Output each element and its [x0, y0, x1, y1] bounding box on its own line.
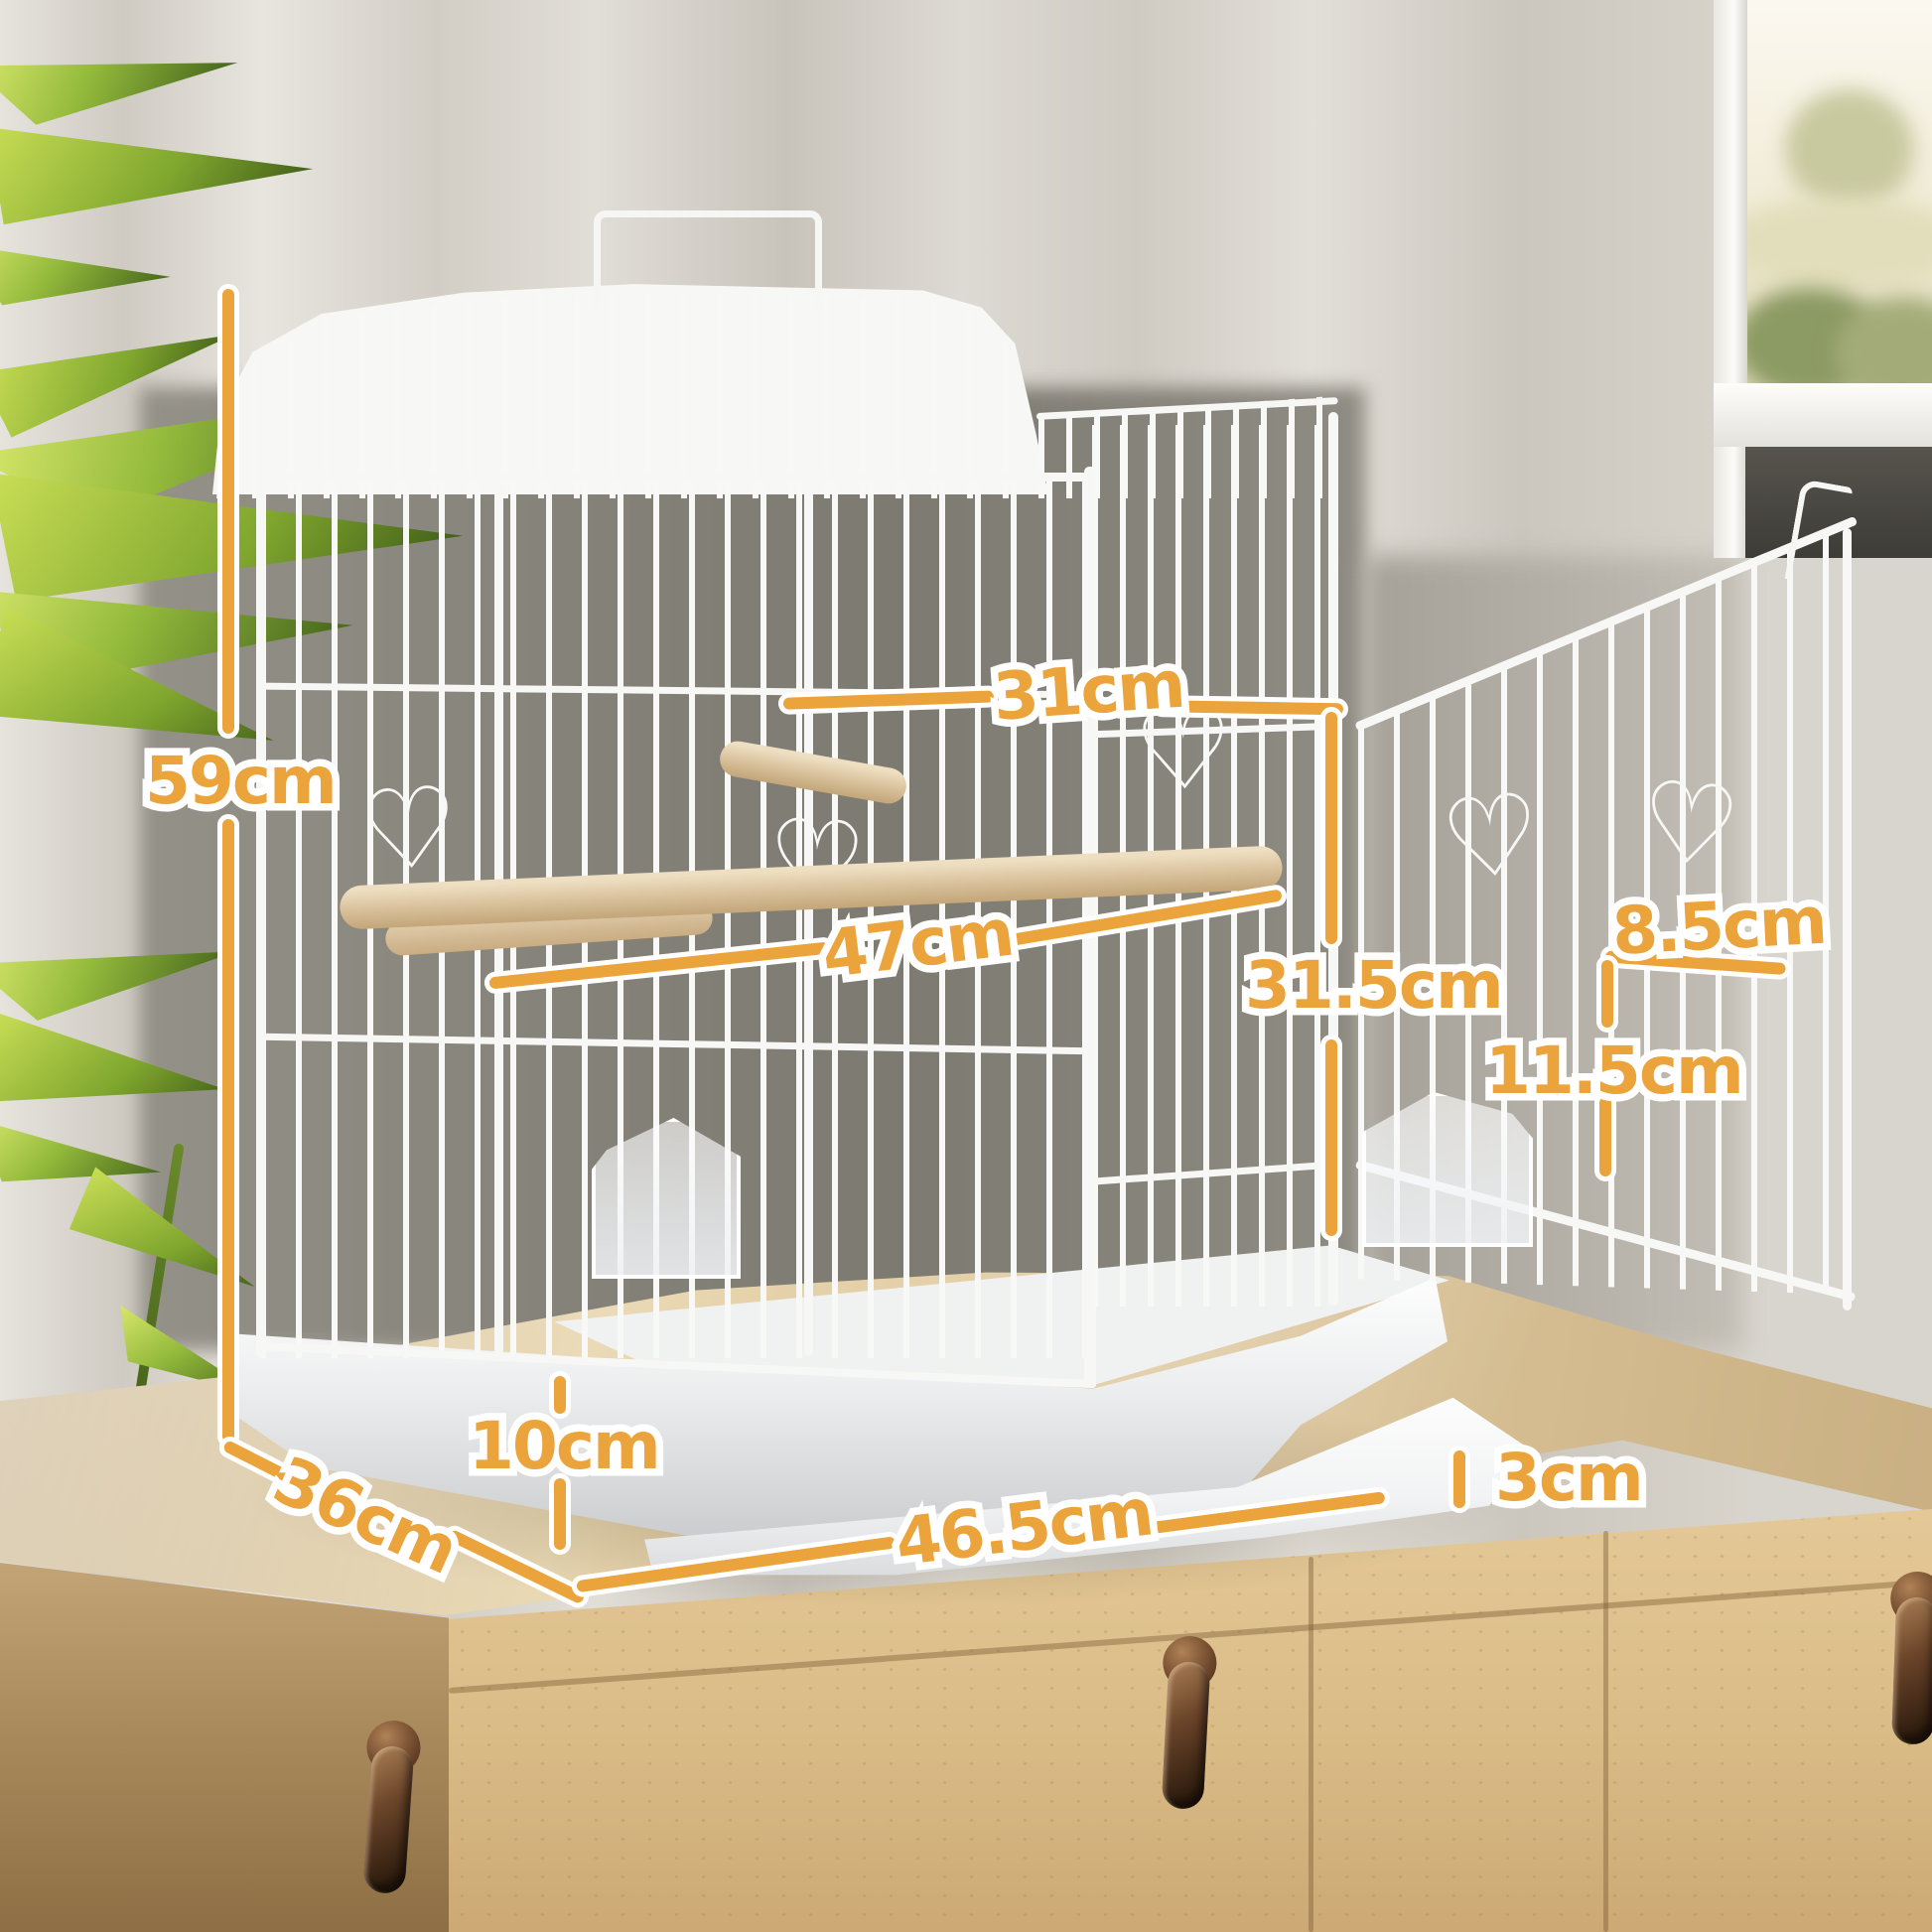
dim-label-59cm: 59cm59cm [145, 743, 336, 819]
heart-wire-icon: ♡ [1436, 777, 1547, 898]
drawer-handle-strap [362, 1745, 414, 1895]
dim-tick-3cm [1449, 1446, 1470, 1513]
dim-label-text: 8.5cm [1610, 883, 1828, 970]
drawer-divider-1 [1309, 1557, 1313, 1932]
door-edge-post [1843, 528, 1852, 1311]
drawer-handle-strap [1162, 1661, 1211, 1810]
dim-label-10cm: 10cm10cm [469, 1408, 659, 1484]
dim-label-text: 11.5cm [1485, 1033, 1742, 1109]
dim-label-85cm: 8.5cm8.5cm [1610, 883, 1828, 970]
cage-carry-handle [594, 210, 822, 309]
dim-label-3cm: 3cm3cm [1495, 1440, 1642, 1516]
dim-line-315-upper [1320, 707, 1342, 949]
dim-label-text: 10cm [469, 1408, 659, 1484]
cage-roof-bars [216, 290, 1044, 498]
drawer-divider-2 [1603, 1531, 1608, 1932]
dim-label-text: 31cm [991, 646, 1186, 736]
window-tree-blob [1785, 89, 1914, 208]
dim-label-text: 31.5cm [1245, 947, 1502, 1024]
dim-line-315-lower [1320, 1035, 1342, 1241]
dim-label-31cm: 31cm31cm [991, 646, 1186, 736]
drawer-handle [1885, 1571, 1932, 1753]
dim-label-115cm: 11.5cm11.5cm [1485, 1033, 1742, 1109]
dim-line-59-upper [217, 284, 239, 739]
dim-label-text: 59cm [145, 743, 336, 819]
dim-label-315cm: 31.5cm31.5cm [1245, 947, 1502, 1024]
dim-label-text: 3cm [1495, 1440, 1642, 1516]
dim-line-10-lower [549, 1473, 571, 1555]
product-scene: ♡ ♡ ♡ ♡ ♡ 59cm59cm [0, 0, 1932, 1932]
dim-line-59-lower [217, 814, 239, 1448]
heart-wire-icon: ♡ [1635, 765, 1744, 885]
cage-front-left-post [256, 473, 265, 1358]
drawer-handle-strap [1891, 1596, 1932, 1744]
window-sill [1714, 383, 1932, 447]
window-frame [1714, 0, 1747, 558]
window-field-blob [1725, 199, 1932, 288]
drawer-handle [1155, 1635, 1219, 1819]
cage-front-top-rail [256, 473, 1096, 482]
heart-wire-icon: ♡ [355, 771, 463, 890]
